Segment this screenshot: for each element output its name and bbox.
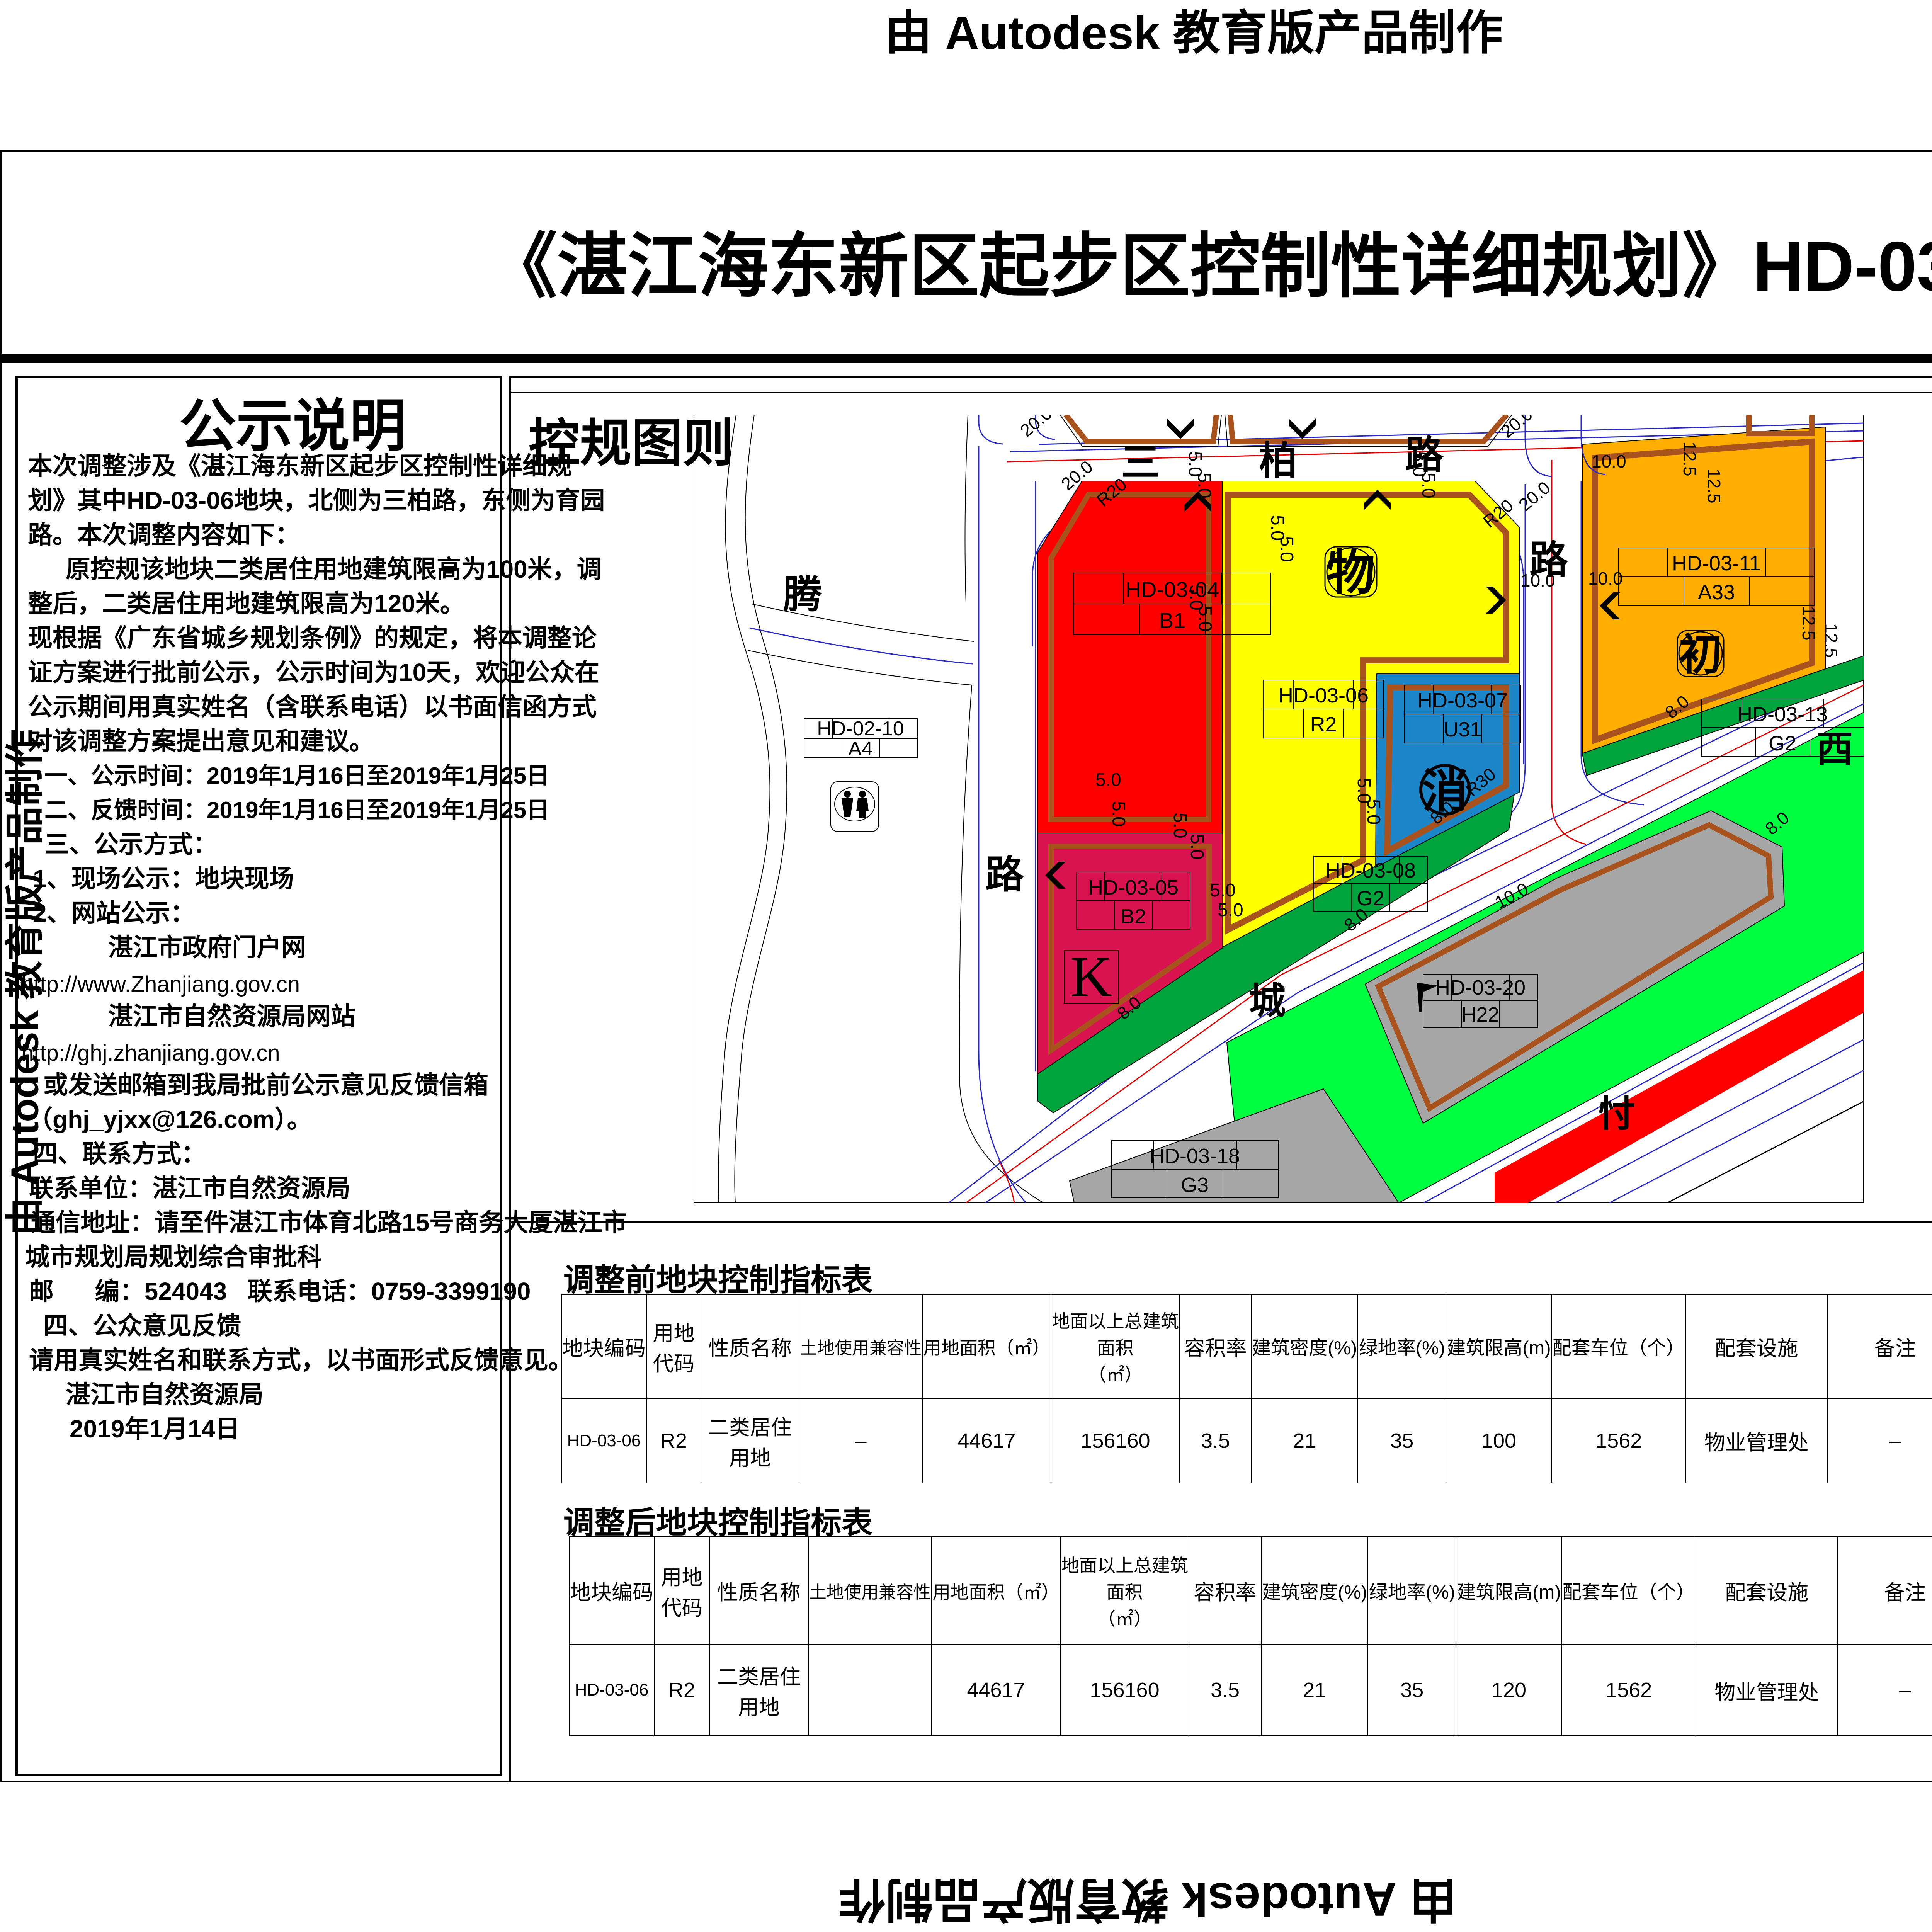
svg-text:5.0: 5.0 <box>1195 606 1215 632</box>
svg-text:5.0: 5.0 <box>1194 473 1214 498</box>
svg-text:10.0: 10.0 <box>1520 570 1555 590</box>
svg-text:G2: G2 <box>1769 732 1796 755</box>
svg-text:忖: 忖 <box>1598 1094 1635 1134</box>
svg-text:12.5: 12.5 <box>1799 606 1819 641</box>
svg-text:A4: A4 <box>848 738 873 760</box>
svg-text:5.0: 5.0 <box>1095 770 1121 790</box>
svg-text:腾: 腾 <box>783 573 822 616</box>
svg-text:10.0: 10.0 <box>1592 451 1626 471</box>
svg-text:20.0: 20.0 <box>1016 415 1056 441</box>
svg-text:R2: R2 <box>1310 713 1337 736</box>
svg-text:A33: A33 <box>1698 581 1735 604</box>
svg-text:12.5: 12.5 <box>1821 623 1841 658</box>
svg-text:HD-03-13: HD-03-13 <box>1737 703 1828 726</box>
svg-text:10.0: 10.0 <box>1588 568 1623 588</box>
svg-text:12.5: 12.5 <box>1680 442 1700 476</box>
svg-text:HD-03-18: HD-03-18 <box>1150 1145 1240 1168</box>
svg-text:5.0: 5.0 <box>1210 880 1236 901</box>
svg-text:HD-02-10: HD-02-10 <box>817 718 904 740</box>
svg-text:12.5: 12.5 <box>1704 469 1724 503</box>
svg-text:5.0: 5.0 <box>1363 799 1384 825</box>
svg-text:HD-03-07: HD-03-07 <box>1417 689 1508 712</box>
svg-text:物: 物 <box>1327 546 1375 600</box>
svg-text:20.0: 20.0 <box>1515 477 1554 515</box>
svg-text:城: 城 <box>1249 981 1286 1022</box>
svg-text:5.0: 5.0 <box>1418 473 1439 498</box>
svg-text:HD-03-08: HD-03-08 <box>1325 859 1416 882</box>
svg-text:5.0: 5.0 <box>1187 834 1207 860</box>
svg-text:5.0: 5.0 <box>1108 801 1129 827</box>
svg-text:西: 西 <box>1816 729 1853 770</box>
svg-text:B2: B2 <box>1121 905 1146 928</box>
svg-text:G3: G3 <box>1181 1173 1209 1197</box>
svg-text:HD-03-05: HD-03-05 <box>1088 876 1179 899</box>
svg-text:HD-03-20: HD-03-20 <box>1435 976 1526 999</box>
svg-text:K: K <box>1070 945 1112 1009</box>
svg-text:初: 初 <box>1679 631 1722 679</box>
svg-text:5.0: 5.0 <box>1276 536 1297 562</box>
svg-text:柏: 柏 <box>1259 439 1298 483</box>
svg-text:5.0: 5.0 <box>1218 900 1243 920</box>
svg-text:HD-03-06: HD-03-06 <box>1278 684 1369 707</box>
svg-text:H22: H22 <box>1461 1003 1499 1026</box>
svg-text:路: 路 <box>985 853 1024 896</box>
svg-text:U31: U31 <box>1443 718 1481 741</box>
svg-text:HD-03-11: HD-03-11 <box>1672 552 1761 575</box>
svg-text:三: 三 <box>1121 441 1160 484</box>
svg-text:B1: B1 <box>1159 608 1186 633</box>
